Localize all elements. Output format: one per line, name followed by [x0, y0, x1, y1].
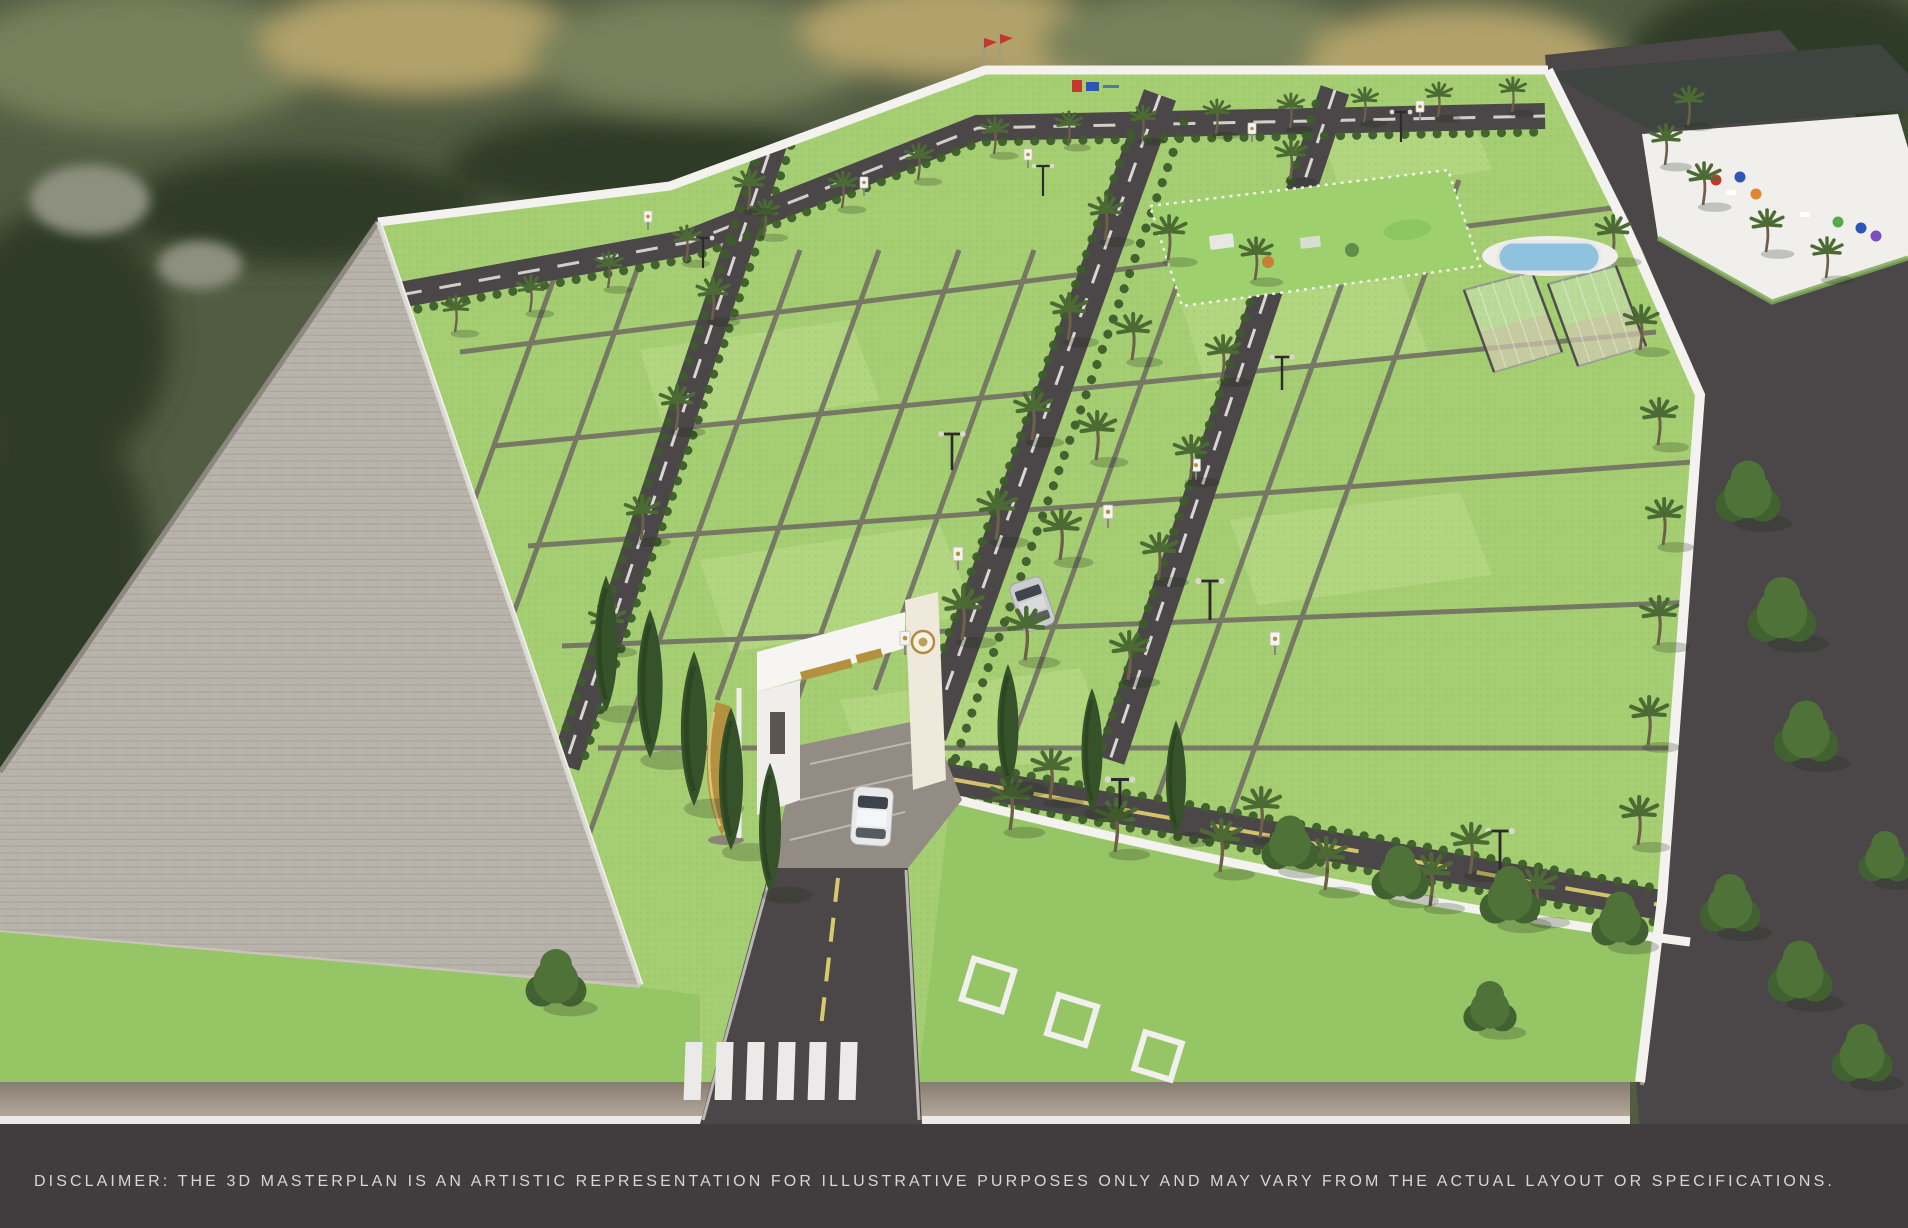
- play-equipment: [1262, 256, 1274, 268]
- park-pergola: [1209, 233, 1235, 250]
- frontage-road-bottom: [0, 1082, 1908, 1228]
- car-white: [850, 786, 894, 847]
- masterplan-render: DISCLAIMER: THE 3D MASTERPLAN IS AN ARTI…: [0, 0, 1908, 1228]
- wall-logo-blue: [1086, 82, 1099, 91]
- masterplan-3d-scene: [0, 0, 1908, 1228]
- gate-cabin-door: [770, 712, 785, 754]
- swimming-pool: [1482, 236, 1618, 276]
- disclaimer-text: DISCLAIMER: THE 3D MASTERPLAN IS AN ARTI…: [34, 1173, 1835, 1191]
- wall-logo-red: [1072, 80, 1082, 92]
